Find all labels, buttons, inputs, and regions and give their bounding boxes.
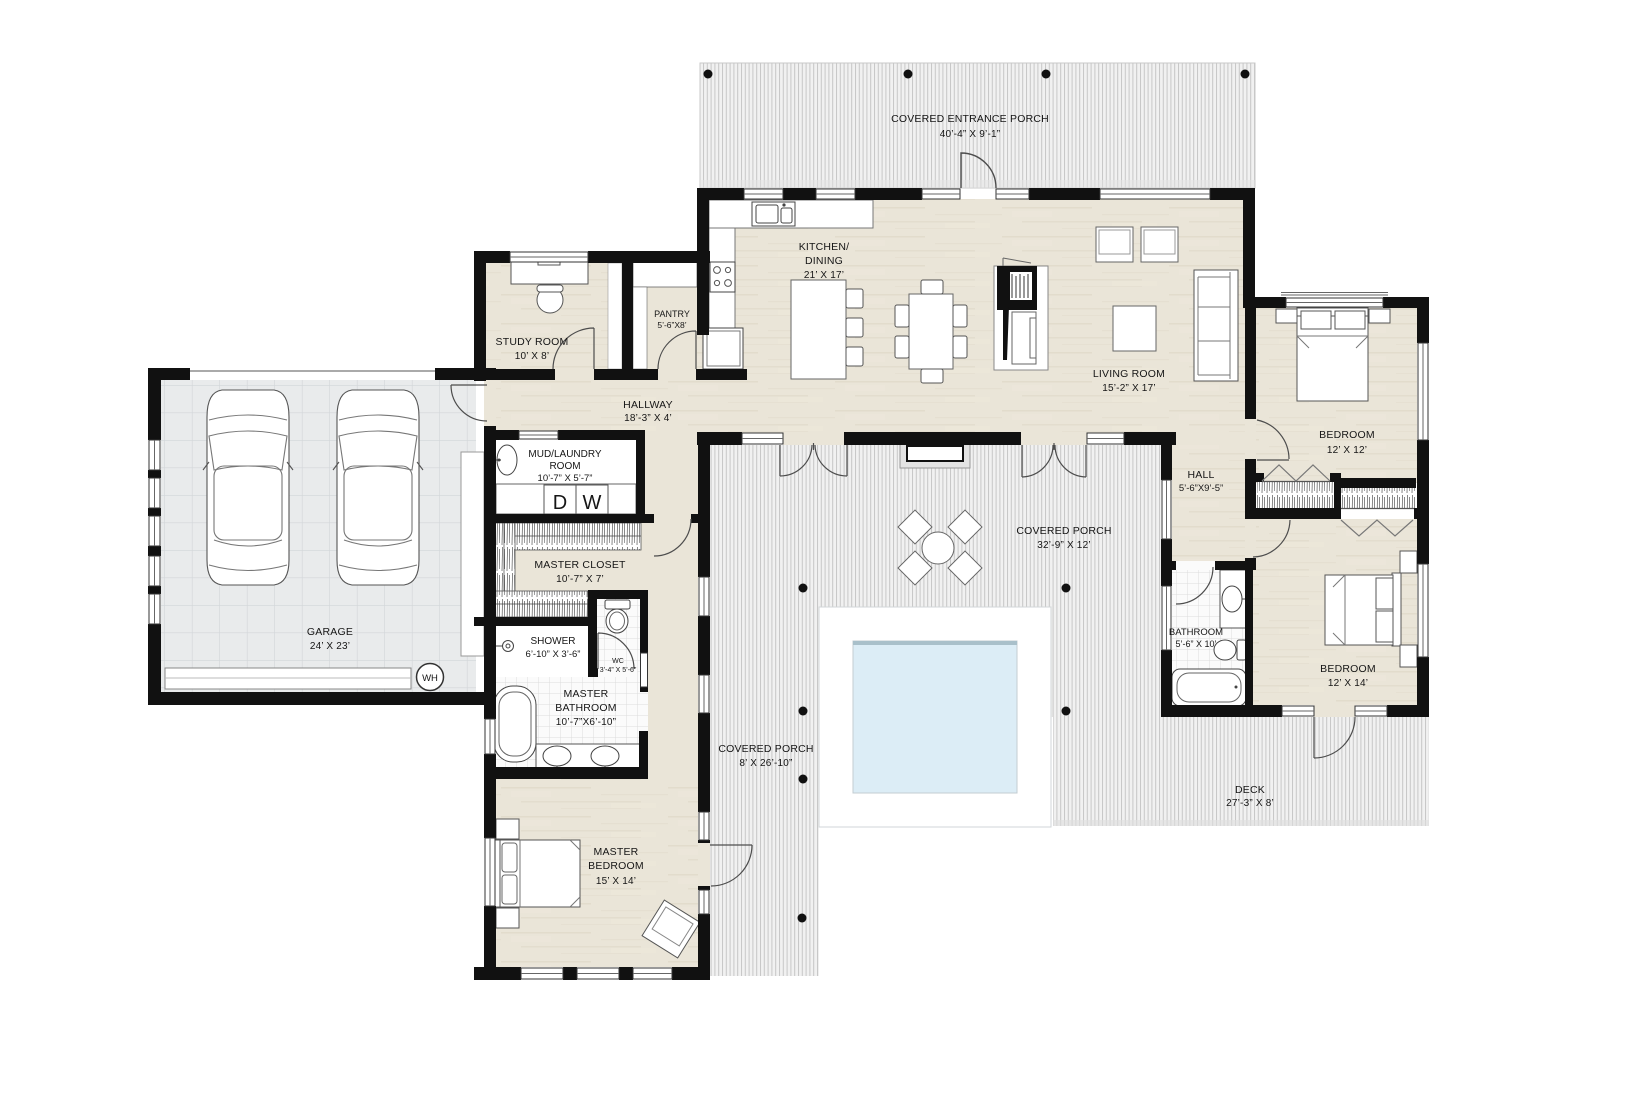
- svg-text:STUDY ROOM: STUDY ROOM: [496, 336, 569, 348]
- svg-text:MUD/LAUNDRY: MUD/LAUNDRY: [528, 449, 601, 460]
- svg-text:15’-2” X 17’: 15’-2” X 17’: [1102, 383, 1156, 394]
- svg-text:GARAGE: GARAGE: [307, 626, 353, 638]
- svg-text:WC: WC: [612, 658, 624, 665]
- svg-text:5’-6”X9’-5”: 5’-6”X9’-5”: [1179, 483, 1223, 494]
- svg-text:5’-6” X 10’: 5’-6” X 10’: [1175, 639, 1216, 649]
- svg-text:24’ X 23’: 24’ X 23’: [310, 641, 350, 652]
- svg-text:40’-4” X 9’-1”: 40’-4” X 9’-1”: [940, 129, 1001, 140]
- svg-text:BEDROOM: BEDROOM: [588, 860, 644, 872]
- svg-text:12’ X 14’: 12’ X 14’: [1328, 678, 1368, 689]
- svg-text:HALLWAY: HALLWAY: [623, 399, 673, 411]
- svg-text:32’-9” X 12’: 32’-9” X 12’: [1037, 540, 1091, 551]
- svg-text:COVERED PORCH: COVERED PORCH: [718, 743, 813, 755]
- svg-text:21’ X 17’: 21’ X 17’: [804, 270, 844, 281]
- svg-text:15’ X 14’: 15’ X 14’: [596, 876, 636, 887]
- svg-text:10’-7”X6’-10”: 10’-7”X6’-10”: [556, 717, 616, 728]
- svg-text:ROOM: ROOM: [549, 461, 580, 472]
- svg-text:6’-10” X 3’-6”: 6’-10” X 3’-6”: [526, 649, 581, 660]
- svg-text:MASTER: MASTER: [594, 846, 639, 858]
- svg-text:5’-6”X8’: 5’-6”X8’: [657, 320, 686, 330]
- svg-text:W: W: [583, 492, 602, 514]
- svg-text:LIVING ROOM: LIVING ROOM: [1093, 368, 1165, 380]
- svg-text:D: D: [553, 492, 567, 514]
- svg-text:BEDROOM: BEDROOM: [1319, 429, 1375, 441]
- svg-text:8’ X 26’-10”: 8’ X 26’-10”: [739, 758, 792, 769]
- svg-text:MASTER: MASTER: [564, 688, 609, 700]
- svg-text:3’-4” X 5’-6”: 3’-4” X 5’-6”: [600, 667, 637, 674]
- svg-text:BEDROOM: BEDROOM: [1320, 663, 1376, 675]
- svg-text:WH: WH: [422, 673, 438, 684]
- svg-text:SHOWER: SHOWER: [531, 636, 576, 647]
- svg-text:18’-3” X 4’: 18’-3” X 4’: [624, 413, 672, 424]
- svg-text:COVERED ENTRANCE PORCH: COVERED ENTRANCE PORCH: [891, 113, 1049, 125]
- svg-text:27’-3” X 8’: 27’-3” X 8’: [1226, 798, 1274, 809]
- svg-text:COVERED PORCH: COVERED PORCH: [1016, 525, 1111, 537]
- svg-text:HALL: HALL: [1187, 469, 1214, 481]
- svg-text:BATHROOM: BATHROOM: [555, 702, 617, 714]
- svg-text:MASTER CLOSET: MASTER CLOSET: [534, 559, 626, 571]
- svg-text:PANTRY: PANTRY: [654, 309, 690, 319]
- svg-text:12’ X 12’: 12’ X 12’: [1327, 445, 1367, 456]
- svg-text:10’-7” X 5’-7”: 10’-7” X 5’-7”: [538, 473, 593, 484]
- svg-text:DECK: DECK: [1235, 784, 1265, 796]
- svg-text:10’ X 8’: 10’ X 8’: [515, 351, 550, 362]
- svg-text:BATHROOM: BATHROOM: [1169, 627, 1223, 638]
- svg-text:KITCHEN/: KITCHEN/: [799, 241, 850, 253]
- svg-text:10’-7” X 7’: 10’-7” X 7’: [556, 574, 604, 585]
- svg-text:DINING: DINING: [805, 255, 843, 267]
